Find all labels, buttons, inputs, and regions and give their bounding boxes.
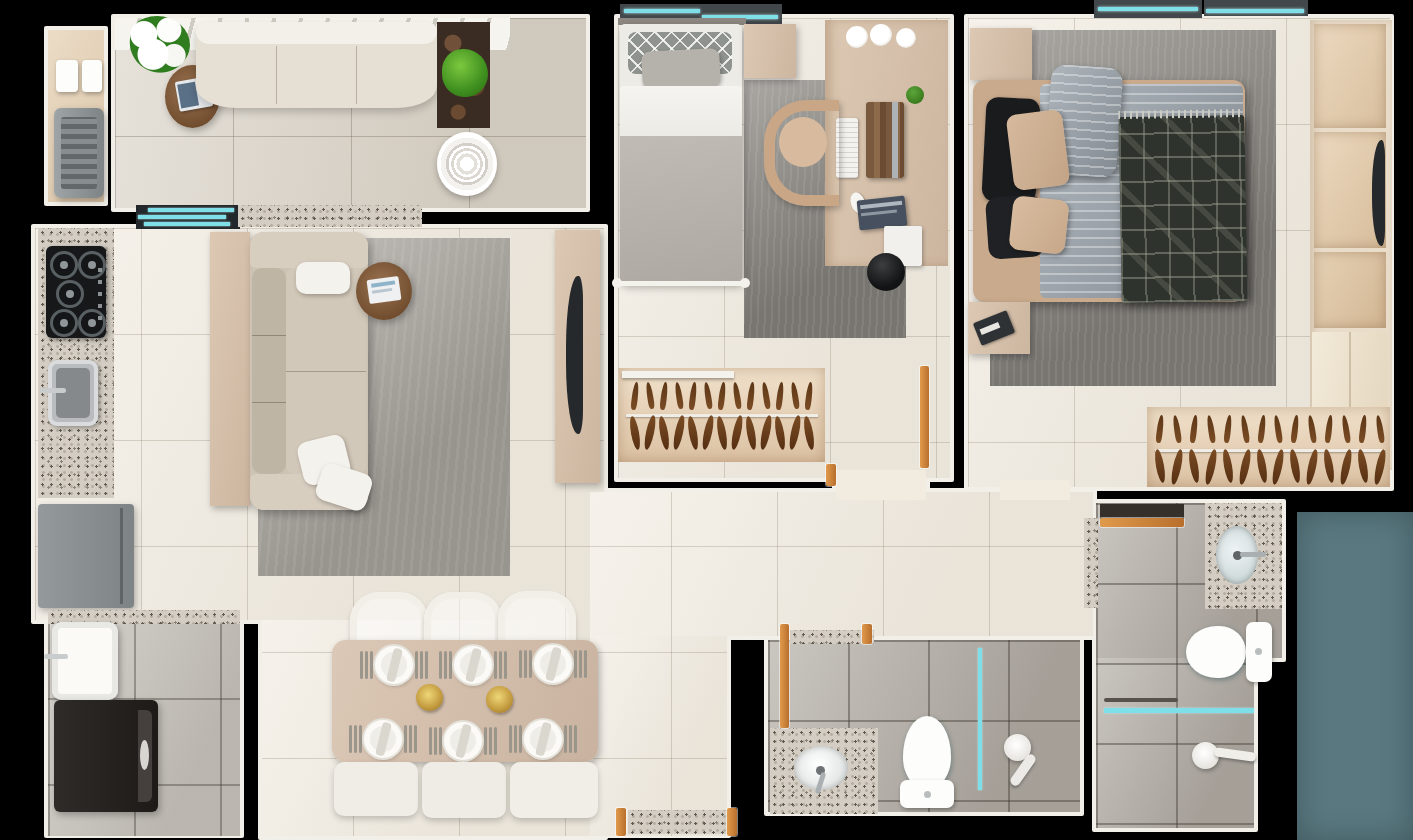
fridge-door-edge <box>120 508 123 604</box>
plate <box>444 722 482 760</box>
entry-door-jamb <box>727 808 737 836</box>
clothes-hanger <box>645 382 655 450</box>
place-setting <box>444 722 482 760</box>
gray-pillow <box>641 48 721 90</box>
closet-hangers <box>630 382 814 450</box>
plate <box>364 720 402 758</box>
round-side-table <box>356 262 412 320</box>
faucet <box>40 388 66 393</box>
clothes-hanger <box>1223 415 1233 485</box>
floor-doorway-bedroom-double <box>1000 480 1070 500</box>
bench-cushion <box>422 762 506 818</box>
clothes-hanger <box>717 382 727 450</box>
white-flower <box>870 24 892 46</box>
desk-plant <box>906 86 924 104</box>
utility-tub <box>52 622 118 700</box>
burner <box>50 251 78 279</box>
sliding-glass-door <box>136 205 240 229</box>
plaid-blanket <box>1118 115 1247 303</box>
grill-tray <box>82 60 102 92</box>
clothes-hanger <box>746 382 756 450</box>
barbecue-grill <box>54 108 104 198</box>
clothes-hanger <box>688 382 698 450</box>
plate <box>524 720 562 758</box>
place-setting <box>524 720 562 758</box>
wardrobe-television <box>1372 140 1385 246</box>
clothes-hanger <box>674 382 684 450</box>
nightstand-side <box>968 302 1030 354</box>
clothes-hanger <box>659 382 669 450</box>
floor-plan <box>0 0 1413 840</box>
exterior-teal-block <box>1297 512 1413 840</box>
shower-glass-partition <box>1104 708 1254 713</box>
door-jamb <box>862 624 872 644</box>
granite-pass-through <box>238 205 422 227</box>
tub-faucet <box>44 654 68 659</box>
white-flower <box>896 28 916 48</box>
cushion-divider <box>286 371 366 372</box>
towel-bar <box>1104 698 1178 702</box>
cushion-divider <box>252 402 286 403</box>
burner <box>50 309 78 337</box>
single-bed <box>620 24 742 284</box>
magazine-print <box>372 288 392 294</box>
floor-doorway-bedroom-single <box>836 470 926 500</box>
glass-pane <box>1206 9 1304 13</box>
kitchen-sink <box>48 360 98 426</box>
wardrobe-niche <box>1314 24 1386 128</box>
cushion-divider <box>356 46 357 104</box>
clothes-hanger <box>1273 415 1283 485</box>
magazine <box>366 276 401 304</box>
place-setting <box>454 646 492 684</box>
closet-hangers <box>1155 415 1385 485</box>
flush-button <box>924 791 931 798</box>
place-setting <box>375 646 413 684</box>
clothes-hanger <box>804 382 814 450</box>
plate <box>375 646 413 684</box>
duvet-fold <box>620 86 742 138</box>
sofa-pillow <box>296 262 350 294</box>
nightstand-top <box>970 28 1032 80</box>
floor-bathroom-suite-lower <box>1096 658 1254 828</box>
place-setting <box>364 720 402 758</box>
potted-plant <box>442 49 488 97</box>
tan-pillow <box>1006 109 1071 191</box>
bathroom-main-door <box>780 624 789 728</box>
shower-glass-partition <box>978 648 982 790</box>
sofa-back-cushions <box>252 268 286 474</box>
grill-grate <box>61 117 97 189</box>
burner <box>56 280 84 308</box>
magazine-print <box>371 280 395 287</box>
refrigerator <box>38 504 134 608</box>
closet-shelf <box>622 371 734 378</box>
clothes-hanger <box>1290 415 1300 485</box>
metal-bookend <box>892 102 898 178</box>
washing-machine <box>54 700 158 812</box>
clothes-hanger <box>630 382 640 450</box>
tan-pillow <box>1008 195 1069 255</box>
gas-cooktop <box>46 246 106 338</box>
book-spine <box>860 201 902 209</box>
glass-pane <box>138 215 226 219</box>
entry-door-jamb <box>616 808 626 836</box>
clothes-hanger <box>1375 415 1385 485</box>
bench-cushion <box>334 762 418 816</box>
keyboard <box>836 118 858 178</box>
bench-cushion <box>510 762 598 818</box>
clothes-hanger <box>1307 415 1317 485</box>
glass-pane <box>148 208 234 212</box>
clothes-hanger <box>1358 415 1368 485</box>
book <box>973 310 1015 346</box>
cooktop-knobs <box>98 264 102 320</box>
clothes-hanger <box>1257 415 1267 485</box>
place-setting <box>534 645 572 683</box>
toilet-tank <box>900 780 954 808</box>
television <box>566 276 583 434</box>
bathroom-suite-door <box>1100 518 1184 527</box>
bed-post <box>612 278 622 288</box>
bathroom-main-sink <box>794 746 848 790</box>
plate <box>454 646 492 684</box>
sink-basin <box>56 368 90 418</box>
clothes-hanger <box>1324 415 1334 485</box>
clothes-hanger <box>1189 415 1199 485</box>
blanket-fringe <box>1118 109 1244 119</box>
window-bedroom-double <box>1204 0 1308 16</box>
flower-centerpiece <box>416 684 443 711</box>
wardrobe-niche <box>1314 252 1386 328</box>
nightstand <box>744 24 796 78</box>
clothes-hanger <box>1206 415 1216 485</box>
outdoor-sofa <box>196 22 437 108</box>
glass-pane <box>624 9 700 13</box>
bed-foot-rail <box>616 281 748 286</box>
bedroom-single-door <box>920 366 929 468</box>
clothes-hanger <box>1240 415 1250 485</box>
chair-seat <box>779 117 827 167</box>
sideboard <box>210 232 250 506</box>
flower-bouquet <box>124 16 190 74</box>
grill-tray <box>56 60 78 92</box>
book-label <box>980 322 1001 335</box>
cushion-divider <box>276 46 277 104</box>
book-organizer <box>866 102 904 178</box>
plate <box>534 645 572 683</box>
black-pouf <box>867 253 905 291</box>
desk-chair <box>764 100 839 206</box>
faucet-arm <box>1240 552 1266 557</box>
clothes-hanger <box>1172 415 1182 485</box>
washer-door-glass <box>140 740 149 770</box>
granite-door-jamb <box>1084 518 1098 608</box>
sofa-back <box>196 22 437 44</box>
clothes-hanger <box>761 382 771 450</box>
book-spine <box>861 209 897 216</box>
clothes-hanger <box>1155 415 1165 485</box>
door-shadow <box>1100 504 1184 519</box>
floor-entry <box>590 636 727 836</box>
floor-fan <box>437 132 497 196</box>
clothes-hanger <box>732 382 742 450</box>
floor-hallway <box>590 492 1093 636</box>
white-flower <box>846 26 868 48</box>
clothes-hanger <box>1341 415 1351 485</box>
toilet-bowl <box>903 716 951 788</box>
entry-threshold <box>628 810 730 834</box>
toilet-tank <box>1246 622 1272 682</box>
glass-pane <box>144 222 230 226</box>
toilet-bowl <box>1186 626 1246 678</box>
flower-centerpiece <box>486 686 513 713</box>
cushion-divider <box>252 335 286 336</box>
bed-post <box>740 278 750 288</box>
flush-button <box>1255 648 1262 655</box>
clothes-hanger <box>775 382 785 450</box>
door-jamb <box>826 464 836 486</box>
clothes-hanger <box>703 382 713 450</box>
glass-pane <box>1098 7 1198 11</box>
bathroom-suite-sink <box>1216 526 1258 584</box>
clothes-hanger <box>790 382 800 450</box>
window-bedroom-double <box>1094 0 1202 18</box>
wardrobe-shelving <box>1310 20 1392 470</box>
bed-blanket <box>620 136 742 284</box>
